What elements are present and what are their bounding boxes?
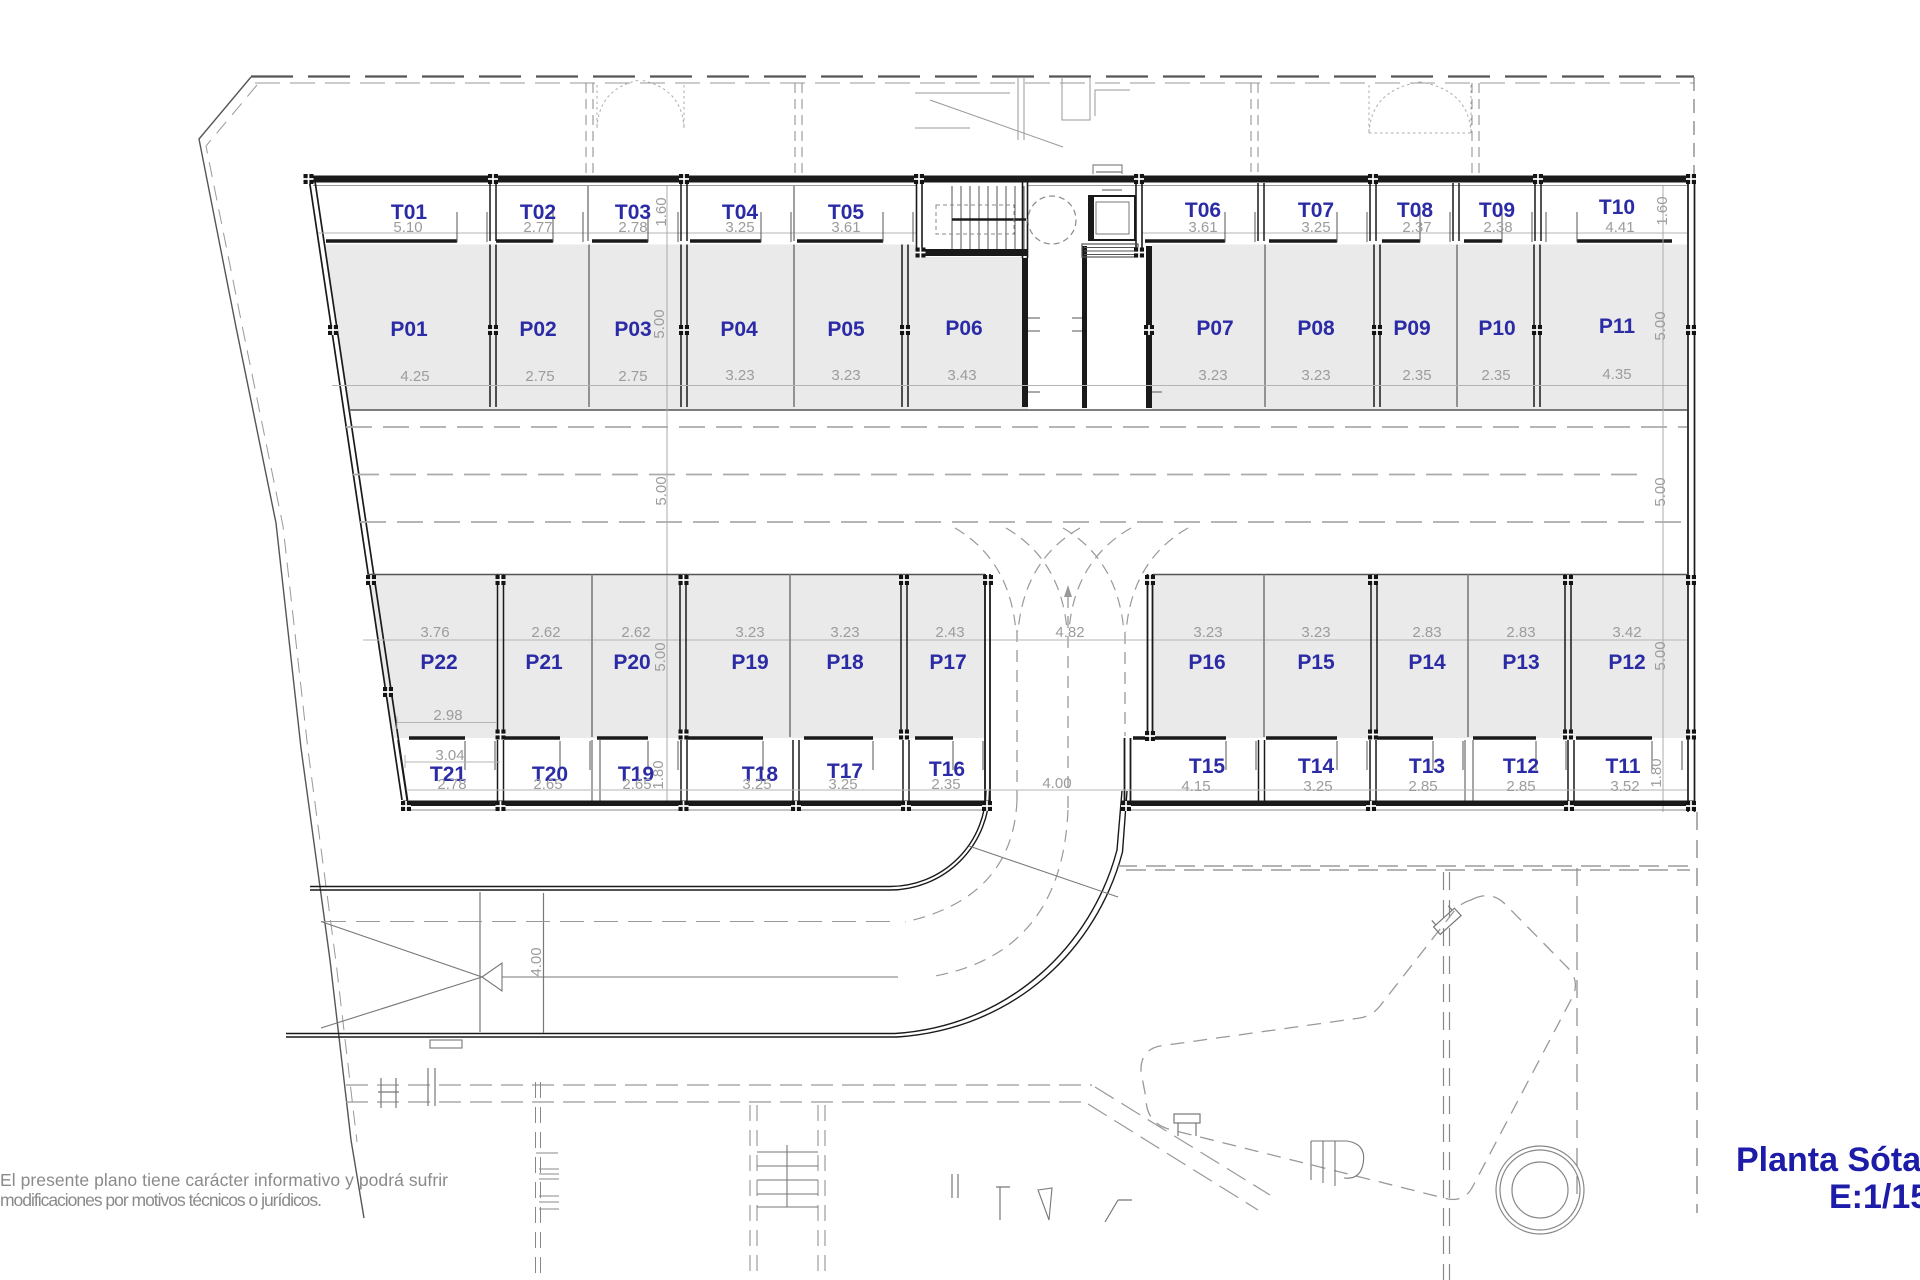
svg-text:P17: P17 [929, 651, 966, 674]
svg-text:T12: T12 [1503, 755, 1539, 778]
svg-text:2.62: 2.62 [621, 624, 650, 641]
svg-text:P13: P13 [1502, 651, 1539, 674]
svg-text:2.65: 2.65 [622, 776, 651, 793]
svg-text:3.25: 3.25 [828, 776, 857, 793]
svg-text:2.85: 2.85 [1408, 778, 1437, 795]
svg-text:3.25: 3.25 [725, 219, 754, 236]
svg-text:3.23: 3.23 [735, 624, 764, 641]
svg-text:5.00: 5.00 [652, 642, 669, 671]
svg-text:3.43: 3.43 [947, 367, 976, 384]
svg-text:4.25: 4.25 [400, 368, 429, 385]
svg-text:T13: T13 [1409, 755, 1445, 778]
svg-text:P21: P21 [525, 651, 563, 674]
svg-text:2.62: 2.62 [531, 624, 560, 641]
svg-text:P20: P20 [613, 651, 650, 674]
svg-text:3.61: 3.61 [831, 219, 860, 236]
svg-text:P16: P16 [1188, 651, 1225, 674]
svg-text:3.52: 3.52 [1610, 778, 1639, 795]
svg-text:3.23: 3.23 [1193, 624, 1222, 641]
svg-text:T11: T11 [1605, 755, 1640, 778]
svg-text:4.35: 4.35 [1602, 366, 1631, 383]
svg-text:3.61: 3.61 [1188, 219, 1217, 236]
svg-text:P03: P03 [614, 318, 651, 341]
svg-text:3.23: 3.23 [831, 367, 860, 384]
svg-text:2.35: 2.35 [1402, 367, 1431, 384]
svg-text:P04: P04 [720, 318, 758, 341]
svg-text:2.83: 2.83 [1506, 624, 1535, 641]
svg-text:3.23: 3.23 [725, 367, 754, 384]
svg-text:4.41: 4.41 [1605, 219, 1634, 236]
svg-text:5.10: 5.10 [393, 219, 422, 236]
svg-text:2.78: 2.78 [618, 219, 647, 236]
svg-text:2.75: 2.75 [525, 368, 554, 385]
svg-text:T15: T15 [1189, 755, 1226, 778]
svg-text:P22: P22 [420, 651, 457, 674]
svg-text:2.77: 2.77 [523, 219, 552, 236]
svg-text:2.65: 2.65 [533, 776, 562, 793]
svg-text:3.42: 3.42 [1612, 624, 1641, 641]
svg-text:3.23: 3.23 [1198, 367, 1227, 384]
svg-text:3.25: 3.25 [742, 776, 771, 793]
svg-text:P15: P15 [1297, 651, 1335, 674]
svg-text:2.75: 2.75 [618, 368, 647, 385]
svg-text:2.37: 2.37 [1402, 219, 1431, 236]
svg-text:2.83: 2.83 [1412, 624, 1441, 641]
svg-text:3.23: 3.23 [830, 624, 859, 641]
svg-text:5.00: 5.00 [1652, 641, 1669, 670]
svg-text:P08: P08 [1297, 317, 1335, 340]
svg-text:P02: P02 [519, 318, 556, 341]
svg-text:3.23: 3.23 [1301, 367, 1330, 384]
svg-text:P06: P06 [945, 317, 982, 340]
svg-text:P12: P12 [1608, 651, 1645, 674]
svg-text:5.00: 5.00 [653, 476, 670, 505]
svg-text:5.00: 5.00 [1652, 311, 1669, 340]
svg-text:4.00: 4.00 [1042, 775, 1071, 792]
svg-text:P19: P19 [731, 651, 768, 674]
svg-text:P18: P18 [826, 651, 864, 674]
svg-text:4.00: 4.00 [528, 947, 545, 976]
svg-text:5.00: 5.00 [1652, 477, 1669, 506]
svg-text:3.04: 3.04 [435, 747, 464, 764]
svg-text:1.60: 1.60 [1654, 196, 1671, 225]
svg-text:P10: P10 [1478, 317, 1515, 340]
svg-text:P14: P14 [1408, 651, 1446, 674]
svg-text:2.43: 2.43 [935, 624, 964, 641]
svg-text:3.25: 3.25 [1301, 219, 1330, 236]
svg-text:3.76: 3.76 [420, 624, 449, 641]
svg-text:1.80: 1.80 [1648, 758, 1665, 787]
svg-text:3.25: 3.25 [1303, 778, 1332, 795]
svg-text:P01: P01 [390, 318, 428, 341]
svg-text:Planta Sótano: Planta Sótano [1736, 1141, 1920, 1179]
svg-text:P05: P05 [827, 318, 865, 341]
svg-text:2.38: 2.38 [1483, 219, 1512, 236]
svg-text:E:1/150: E:1/150 [1829, 1178, 1920, 1216]
svg-text:P07: P07 [1196, 317, 1233, 340]
svg-text:5.00: 5.00 [651, 309, 668, 338]
svg-text:P09: P09 [1393, 317, 1430, 340]
svg-text:3.23: 3.23 [1301, 624, 1330, 641]
svg-text:T10: T10 [1599, 196, 1635, 219]
svg-text:2.35: 2.35 [1481, 367, 1510, 384]
svg-text:P11: P11 [1599, 315, 1636, 338]
svg-text:2.98: 2.98 [433, 707, 462, 724]
svg-text:2.78: 2.78 [437, 776, 466, 793]
svg-text:4.82: 4.82 [1055, 624, 1084, 641]
svg-text:2.35: 2.35 [931, 776, 960, 793]
svg-text:4.15: 4.15 [1181, 778, 1210, 795]
svg-text:El presente plano tiene caráct: El presente plano tiene carácter informa… [0, 1170, 448, 1190]
svg-text:1.60: 1.60 [653, 197, 670, 226]
svg-text:modificaciones por motivos téc: modificaciones por motivos técnicos o ju… [0, 1190, 322, 1210]
svg-text:T14: T14 [1298, 755, 1335, 778]
svg-text:2.85: 2.85 [1506, 778, 1535, 795]
